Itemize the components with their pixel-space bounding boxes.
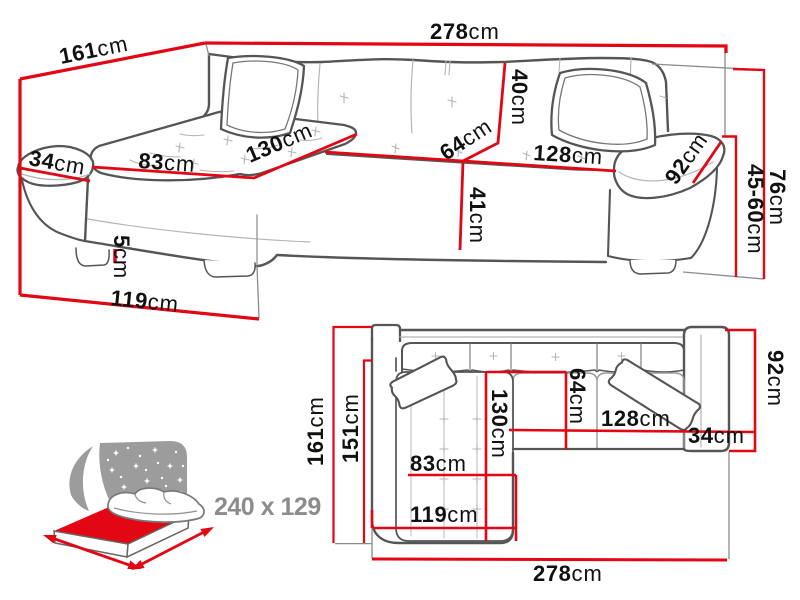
svg-text:119cm: 119cm bbox=[410, 502, 479, 527]
svg-text:92cm: 92cm bbox=[763, 350, 788, 407]
svg-text:41cm: 41cm bbox=[465, 187, 490, 244]
svg-text:161cm: 161cm bbox=[303, 396, 328, 466]
svg-text:278cm: 278cm bbox=[533, 561, 603, 586]
svg-text:34cm: 34cm bbox=[688, 423, 745, 448]
svg-text:83cm: 83cm bbox=[138, 148, 197, 177]
svg-text:278cm: 278cm bbox=[430, 19, 500, 44]
svg-text:5cm: 5cm bbox=[109, 235, 134, 279]
svg-text:240 x 129: 240 x 129 bbox=[214, 493, 321, 521]
svg-text:130cm: 130cm bbox=[487, 389, 512, 459]
svg-text:76cm: 76cm bbox=[765, 169, 790, 226]
svg-text:83cm: 83cm bbox=[410, 451, 467, 476]
svg-text:119cm: 119cm bbox=[110, 285, 181, 317]
svg-text:45-60cm: 45-60cm bbox=[743, 164, 768, 255]
svg-text:128cm: 128cm bbox=[533, 140, 604, 169]
svg-text:40cm: 40cm bbox=[507, 69, 532, 126]
svg-text:151cm: 151cm bbox=[338, 393, 363, 463]
svg-text:128cm: 128cm bbox=[601, 406, 671, 431]
svg-text:64cm: 64cm bbox=[565, 368, 590, 425]
